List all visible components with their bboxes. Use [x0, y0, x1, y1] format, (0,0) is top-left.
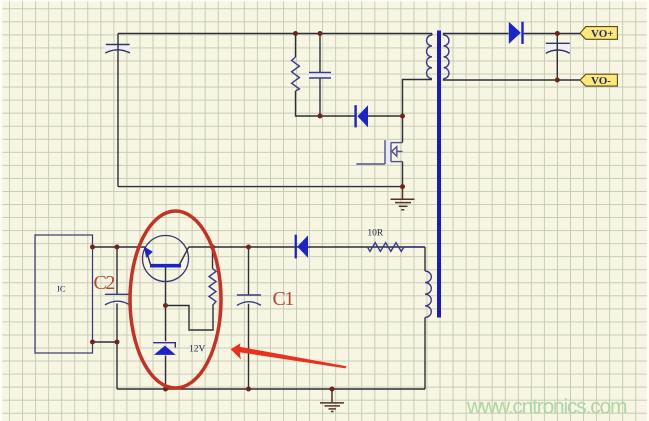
svg-text:VO+: VO+: [591, 28, 614, 40]
svg-text:www.cntronics.com: www.cntronics.com: [466, 396, 627, 419]
svg-text:VO-: VO-: [591, 75, 611, 87]
svg-text:12V: 12V: [189, 345, 206, 355]
svg-text:10R: 10R: [367, 229, 384, 239]
svg-text:C2: C2: [94, 272, 115, 294]
svg-text:C1: C1: [273, 288, 294, 310]
svg-text:IC: IC: [57, 284, 66, 294]
